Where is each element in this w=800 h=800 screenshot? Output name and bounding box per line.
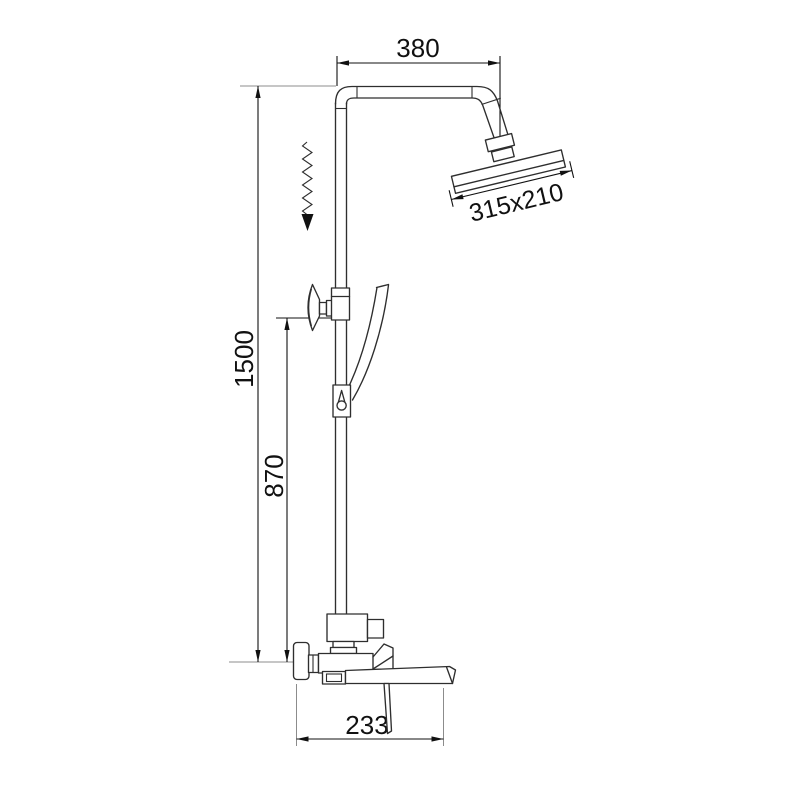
- dimension-380: 380: [337, 33, 500, 66]
- dim1500-label: 1500: [229, 330, 259, 388]
- connector-neck-upper: [333, 642, 354, 648]
- connector-block: [327, 614, 368, 642]
- bottom-connector: [327, 614, 384, 654]
- rain-shower-head: 315x210: [446, 149, 579, 231]
- dimension-233: 233: [297, 710, 444, 742]
- dim380-label: 380: [396, 33, 439, 63]
- adjustable-height-arrow: [302, 142, 314, 231]
- dimension-1500: 1500: [229, 86, 261, 662]
- spring-zigzag-icon: [303, 142, 313, 215]
- pipe-outer-edge: [336, 87, 509, 137]
- connector-neck-lower: [331, 648, 357, 654]
- dim1500-top-arrow-icon: [255, 86, 260, 98]
- holder-hook-ring-icon: [337, 401, 346, 410]
- dim1500-bottom-arrow-icon: [255, 650, 260, 662]
- arm-connector-nut: [485, 134, 517, 163]
- head-dim-left-arrow-icon: [451, 194, 464, 202]
- diverter-knob-line: [373, 656, 393, 669]
- bracket-stem: [320, 303, 327, 315]
- slider-sleeve: [332, 288, 350, 320]
- dim233-left-arrow-icon: [297, 736, 309, 741]
- down-arrow-icon: [302, 214, 314, 231]
- dim870-label: 870: [259, 454, 289, 497]
- dim380-left-arrow-icon: [337, 60, 349, 65]
- dim870-bottom-arrow-icon: [284, 650, 289, 662]
- head-dim-left-tick: [449, 190, 453, 207]
- shower-set-technical-drawing: 380 1500 870 233: [0, 0, 800, 800]
- extension-lines: [229, 56, 500, 746]
- dim233-right-arrow-icon: [432, 736, 444, 741]
- wall-bracket: [308, 285, 333, 331]
- hand-shower-left-edge: [350, 288, 378, 386]
- pipe-inner-edge: [347, 98, 495, 139]
- head-dim-right-tick: [570, 161, 574, 178]
- hand-shower-right-edge: [353, 285, 389, 400]
- dim380-right-arrow-icon: [488, 60, 500, 65]
- dimension-870: 870: [259, 318, 290, 662]
- riser-pipe: [336, 87, 509, 615]
- hand-shower-head-cap: [377, 285, 389, 288]
- dim870-top-arrow-icon: [284, 318, 289, 330]
- head-dim-right-arrow-icon: [560, 168, 573, 176]
- dim233-label: 233: [345, 710, 388, 740]
- wall-flange: [294, 643, 310, 680]
- connector-side-port: [368, 620, 384, 639]
- sleeve-body: [332, 288, 350, 320]
- bracket-cone: [308, 285, 320, 331]
- drawing-svg: 380 1500 870 233: [0, 0, 800, 800]
